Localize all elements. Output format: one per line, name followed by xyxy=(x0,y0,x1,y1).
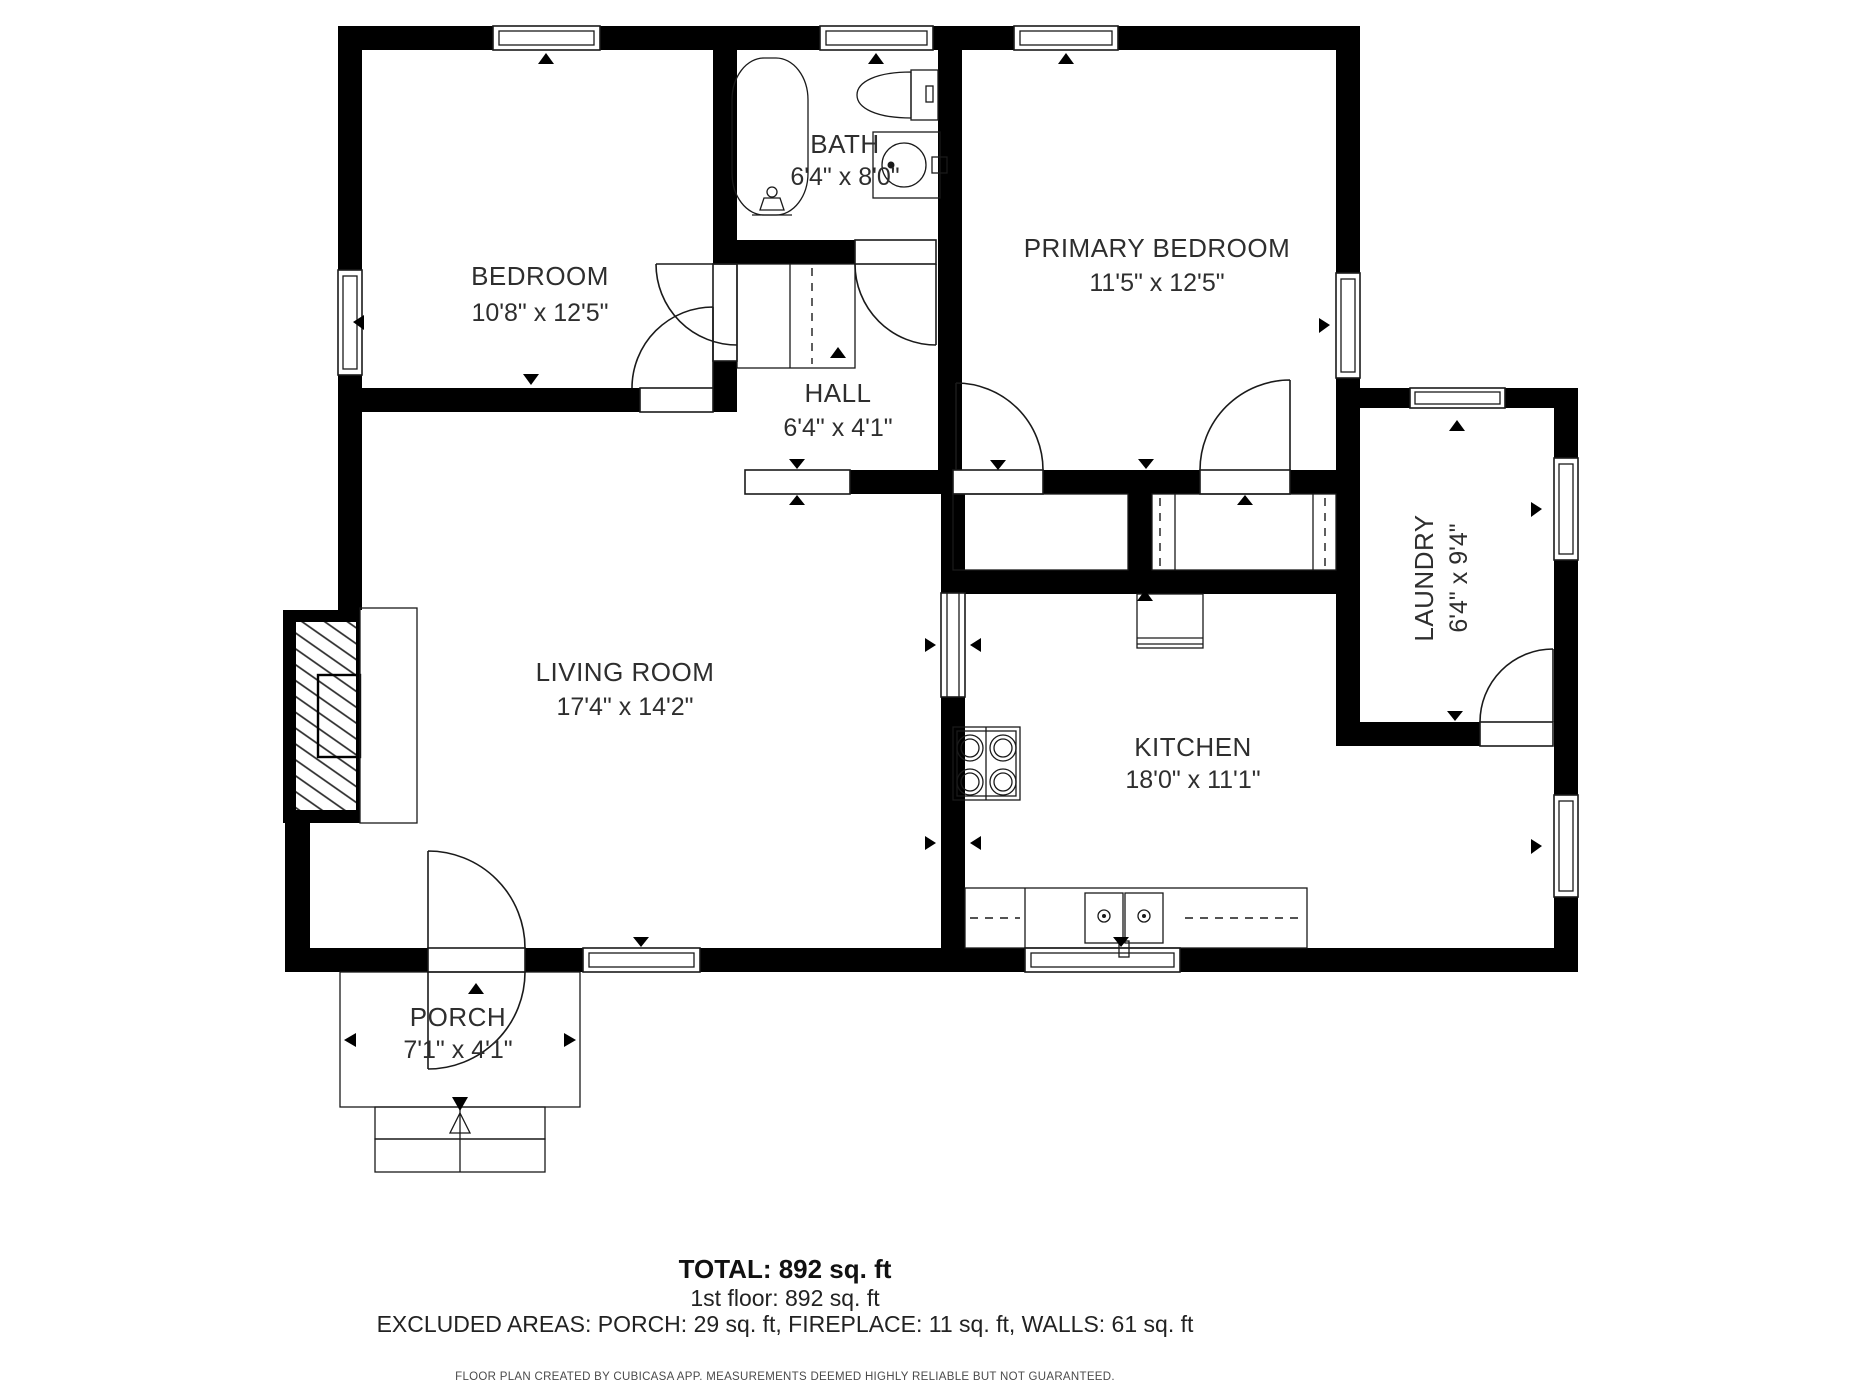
laundry-dims: 6'4" x 9'4" xyxy=(1445,523,1473,632)
summary: TOTAL: 892 sq. ft 1st floor: 892 sq. ft … xyxy=(377,1254,1194,1383)
toilet xyxy=(857,70,938,120)
hall-dims: 6'4" x 4'1" xyxy=(783,414,892,442)
tick-window-primary-right xyxy=(1319,318,1330,333)
wall-right-lower-3 xyxy=(1554,897,1578,972)
porch-dims: 7'1" x 4'1" xyxy=(403,1036,512,1064)
wall-bottom-2 xyxy=(525,948,583,972)
tick-laundry-bottom xyxy=(1447,711,1463,721)
living-room-name: LIVING ROOM xyxy=(536,657,715,687)
summary-excluded: EXCLUDED AREAS: PORCH: 29 sq. ft, FIREPL… xyxy=(377,1311,1194,1337)
label-porch: PORCH 7'1" x 4'1" xyxy=(403,1002,512,1064)
label-bedroom: BEDROOM 10'8" x 12'5" xyxy=(471,261,609,327)
wall-laundry-left xyxy=(1336,408,1360,746)
closet-a xyxy=(953,494,1128,570)
living-room-dims: 17'4" x 14'2" xyxy=(556,693,693,721)
wall-closet-top-3 xyxy=(1290,470,1336,494)
threshold-laundry-door xyxy=(1480,722,1553,746)
threshold-bedroom-south-door xyxy=(640,388,713,412)
window-living-bottom xyxy=(583,948,700,972)
tick-window-bedroom-top xyxy=(538,53,554,64)
wall-right-lower-2 xyxy=(1554,560,1578,795)
porch-name: PORCH xyxy=(410,1002,506,1032)
primary-door-2-arc xyxy=(1200,380,1290,470)
primary-bedroom-dims: 11'5" x 12'5" xyxy=(1089,269,1224,297)
porch-steps xyxy=(375,1107,545,1172)
tick-window-kitchen-right xyxy=(1531,839,1542,854)
wall-bath-bottom xyxy=(713,240,855,264)
fireplace-hatch xyxy=(296,622,356,810)
closet-b xyxy=(1152,494,1336,570)
threshold-front-door xyxy=(428,948,525,972)
bath-name: BATH xyxy=(810,129,879,159)
tick-window-laundry-right xyxy=(1531,502,1542,517)
window-kitchen-bottom xyxy=(1025,948,1180,972)
tick-window-kitchen-bottom xyxy=(1113,937,1129,947)
tick-window-primary-top xyxy=(1058,53,1074,64)
wall-right-upper-1 xyxy=(1336,26,1360,273)
tick-passthrough-left xyxy=(925,638,936,652)
threshold-bedroom-door xyxy=(713,264,737,361)
label-kitchen: KITCHEN 18'0" x 11'1" xyxy=(1125,732,1260,794)
primary-door-1-arc xyxy=(956,383,1043,470)
label-primary-bedroom: PRIMARY BEDROOM 11'5" x 12'5" xyxy=(1024,233,1291,297)
wall-laundry-top-1 xyxy=(1360,388,1410,408)
summary-floor1: 1st floor: 892 sq. ft xyxy=(690,1285,880,1311)
primary-bedroom-name: PRIMARY BEDROOM xyxy=(1024,233,1291,263)
wall-left-upper xyxy=(338,26,362,270)
label-hall: HALL 6'4" x 4'1" xyxy=(783,378,892,442)
wall-bath-primary xyxy=(938,26,962,470)
floor-plan-page: BEDROOM 10'8" x 12'5" BATH 6'4" x 8'0" P… xyxy=(0,0,1860,1396)
window-laundry-top xyxy=(1410,388,1505,408)
wall-bottom-4 xyxy=(1180,948,1578,972)
window-laundry-right xyxy=(1554,458,1578,560)
window-bedroom-top xyxy=(493,26,600,50)
window-kitchen-right xyxy=(1554,795,1578,897)
tick-divider-right xyxy=(970,836,981,850)
tick-divider-left xyxy=(925,836,936,850)
wall-bedroom-bath-1 xyxy=(713,26,737,264)
window-primary-right xyxy=(1336,273,1360,378)
laundry-door-arc xyxy=(1480,649,1553,722)
wall-bottom-3 xyxy=(700,948,1025,972)
tick-bedroom-bottom xyxy=(523,374,539,385)
tick-porch-right xyxy=(564,1033,576,1047)
laundry-name: LAUNDRY xyxy=(1409,514,1439,641)
tick-window-laundry-top xyxy=(1449,420,1465,431)
tick-porch-door xyxy=(468,983,484,994)
threshold-primary-door-1 xyxy=(953,470,1043,494)
threshold-primary-door-2 xyxy=(1200,470,1290,494)
summary-total: TOTAL: 892 sq. ft xyxy=(679,1254,892,1284)
tick-passthrough-right xyxy=(970,638,981,652)
label-laundry: LAUNDRY 6'4" x 9'4" xyxy=(1409,514,1473,641)
tick-porch-left xyxy=(344,1033,356,1047)
kitchen-dims: 18'0" x 11'1" xyxy=(1125,766,1260,794)
summary-footer: FLOOR PLAN CREATED BY CUBICASA APP. MEAS… xyxy=(455,1371,1115,1383)
bathtub xyxy=(732,58,808,215)
window-bath-top xyxy=(820,26,933,50)
wall-right-upper-2 xyxy=(1336,378,1360,408)
tick-closet-divider xyxy=(1138,459,1154,469)
bath-dims: 6'4" x 8'0" xyxy=(790,163,899,191)
door-thresholds xyxy=(428,240,1553,972)
bath-door-arc xyxy=(855,264,936,345)
tick-hall-passage-top xyxy=(789,459,805,469)
bedroom-name: BEDROOM xyxy=(471,261,609,291)
wall-bedroom-bottom xyxy=(338,388,640,412)
label-living-room: LIVING ROOM 17'4" x 14'2" xyxy=(536,657,715,721)
floor-plan-svg: BEDROOM 10'8" x 12'5" BATH 6'4" x 8'0" P… xyxy=(0,0,1860,1396)
tick-hall-passage-bottom xyxy=(789,495,805,505)
window-primary-top xyxy=(1014,26,1118,50)
tick-window-living-bottom xyxy=(633,937,649,947)
kitchen-name: KITCHEN xyxy=(1134,732,1252,762)
kitchen-counter-upper xyxy=(1137,594,1203,648)
tick-window-bath-top xyxy=(868,53,884,64)
tick-primary-door-2 xyxy=(1237,495,1253,505)
wall-bottom-1 xyxy=(285,948,428,972)
bedroom-dims: 10'8" x 12'5" xyxy=(471,299,608,327)
bedroom-south-door-arc xyxy=(632,307,713,388)
threshold-hall-passage xyxy=(745,470,850,494)
wall-closet-top-1 xyxy=(850,470,953,494)
wall-closet-divider xyxy=(1128,494,1152,570)
wall-bedroom-bath-2 xyxy=(713,361,737,412)
walls xyxy=(283,26,1578,972)
wall-closet-top-2 xyxy=(1043,470,1200,494)
fireplace-hearth xyxy=(360,608,417,823)
front-door-arc-inside xyxy=(428,851,525,948)
tick-hall-top xyxy=(830,347,846,358)
threshold-bath-door xyxy=(855,240,936,264)
wall-right-lower-1 xyxy=(1554,388,1578,458)
kitchen-counter xyxy=(965,888,1307,957)
hall-name: HALL xyxy=(804,378,871,408)
label-bath: BATH 6'4" x 8'0" xyxy=(790,129,899,191)
wall-closet-bottom xyxy=(965,570,1336,594)
kitchen-pass-through xyxy=(941,593,965,697)
wall-laundry-bottom xyxy=(1336,722,1480,746)
tick-primary-door-1 xyxy=(990,460,1006,470)
